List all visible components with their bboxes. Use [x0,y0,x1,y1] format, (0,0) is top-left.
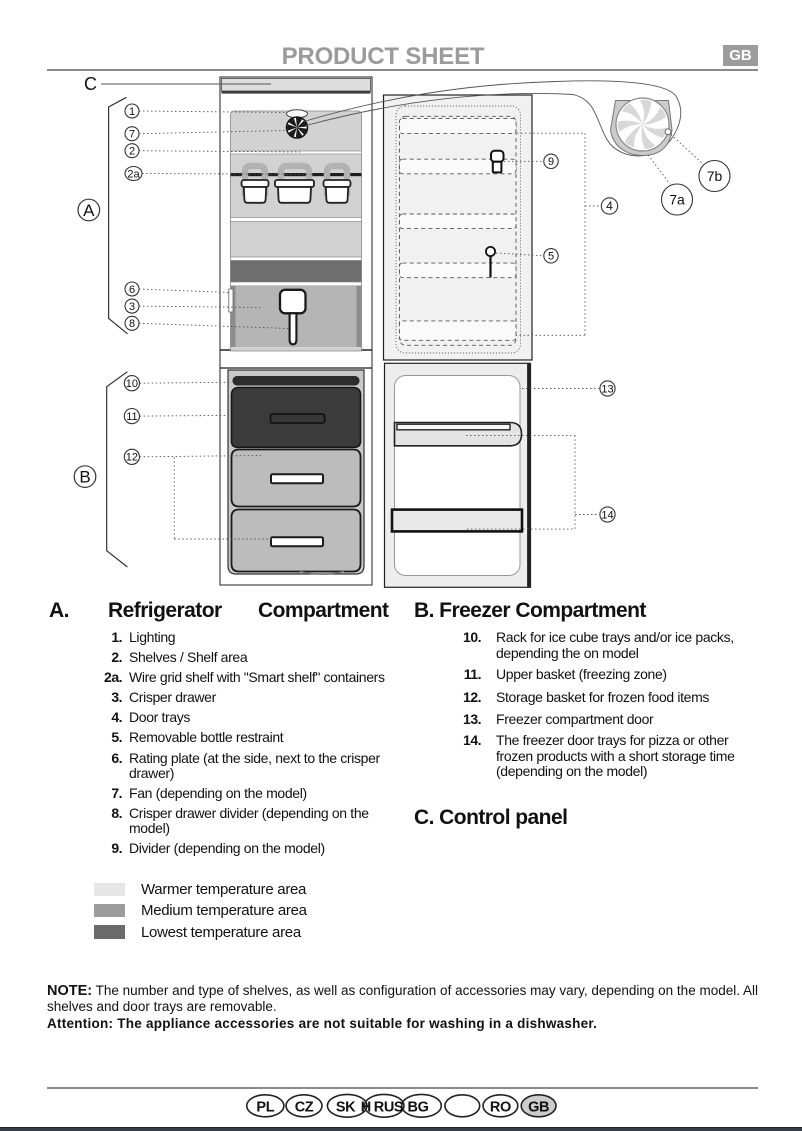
svg-text:5: 5 [548,251,554,263]
svg-text:13: 13 [601,383,613,395]
svg-text:RUS: RUS [374,1099,404,1115]
svg-text:7b: 7b [707,168,723,184]
svg-text:14: 14 [601,509,613,521]
svg-text:C: C [84,74,97,94]
svg-text:PL: PL [256,1099,274,1115]
svg-text:7: 7 [129,129,135,141]
svg-text:3: 3 [129,301,135,313]
svg-text:1: 1 [129,106,135,118]
svg-text:2: 2 [129,146,135,158]
svg-text:9: 9 [548,156,554,168]
svg-text:GB: GB [528,1099,549,1115]
svg-text:SK: SK [336,1099,356,1115]
svg-text:10: 10 [126,378,138,390]
svg-text:8: 8 [129,318,135,330]
svg-text:11: 11 [126,411,137,423]
svg-text:CZ: CZ [295,1099,314,1115]
svg-text:2a: 2a [127,168,140,180]
svg-text:7a: 7a [669,192,685,208]
svg-text:4: 4 [606,199,613,213]
svg-text:A: A [83,201,95,220]
svg-text:12: 12 [126,452,138,464]
svg-text:H: H [361,1099,371,1115]
svg-text:6: 6 [129,284,135,296]
svg-text:B: B [79,468,90,487]
svg-text:BG: BG [408,1099,429,1115]
svg-text:RO: RO [490,1099,511,1115]
